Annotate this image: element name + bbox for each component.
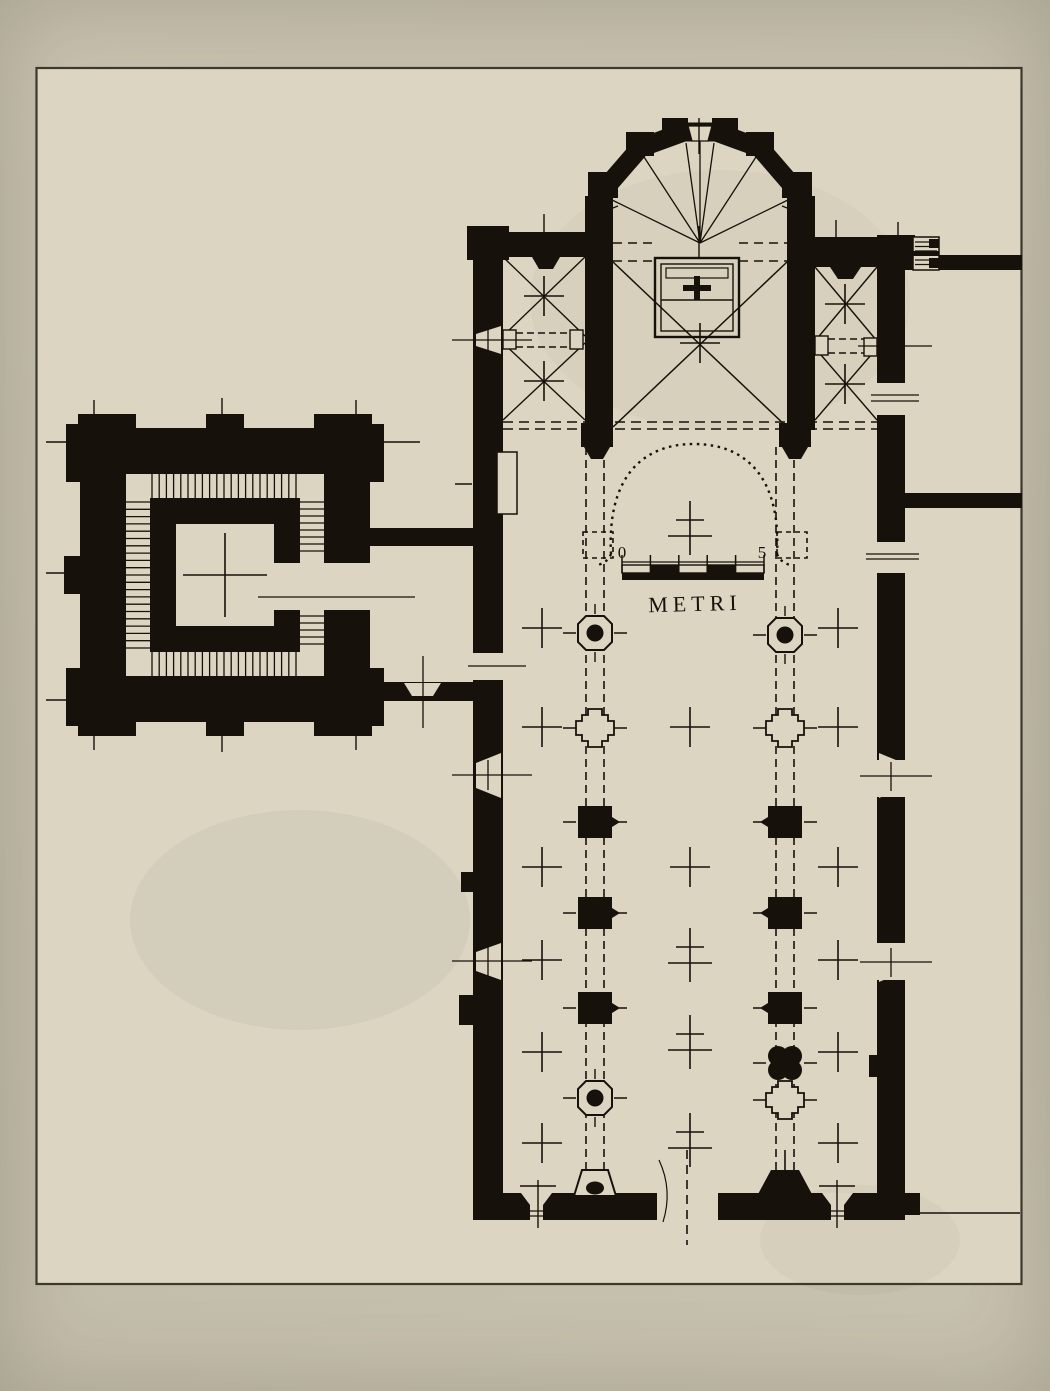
east-wall-1 <box>877 267 905 383</box>
colonnade-head-pier-left <box>581 423 613 447</box>
stair-annex <box>913 237 939 270</box>
west-wall-niche <box>497 452 517 514</box>
scale-unit-label: METRI <box>648 590 742 617</box>
east-wall-5 <box>877 980 905 1193</box>
tower-door-opening <box>274 563 372 610</box>
scale-start-label: 0 <box>618 543 627 562</box>
facade-wall-right <box>718 1193 905 1220</box>
floorplan-photograph: 0 5 METRI <box>0 0 1050 1391</box>
facade-wall-left <box>473 1193 657 1220</box>
east-wall-4 <box>877 797 905 943</box>
scale-end-label: 5 <box>758 543 767 562</box>
colonnade-head-pier-right <box>779 423 811 447</box>
facade-southeast-corner <box>877 1186 905 1220</box>
apse-niche <box>688 126 712 141</box>
east-wall-3 <box>877 573 905 760</box>
pier-base-outline <box>574 1170 616 1196</box>
east-annex-wall <box>898 493 1022 508</box>
east-wall-2 <box>877 415 905 542</box>
plan-drawing: 0 5 METRI <box>0 0 1050 1391</box>
west-wall-upper <box>473 232 503 653</box>
